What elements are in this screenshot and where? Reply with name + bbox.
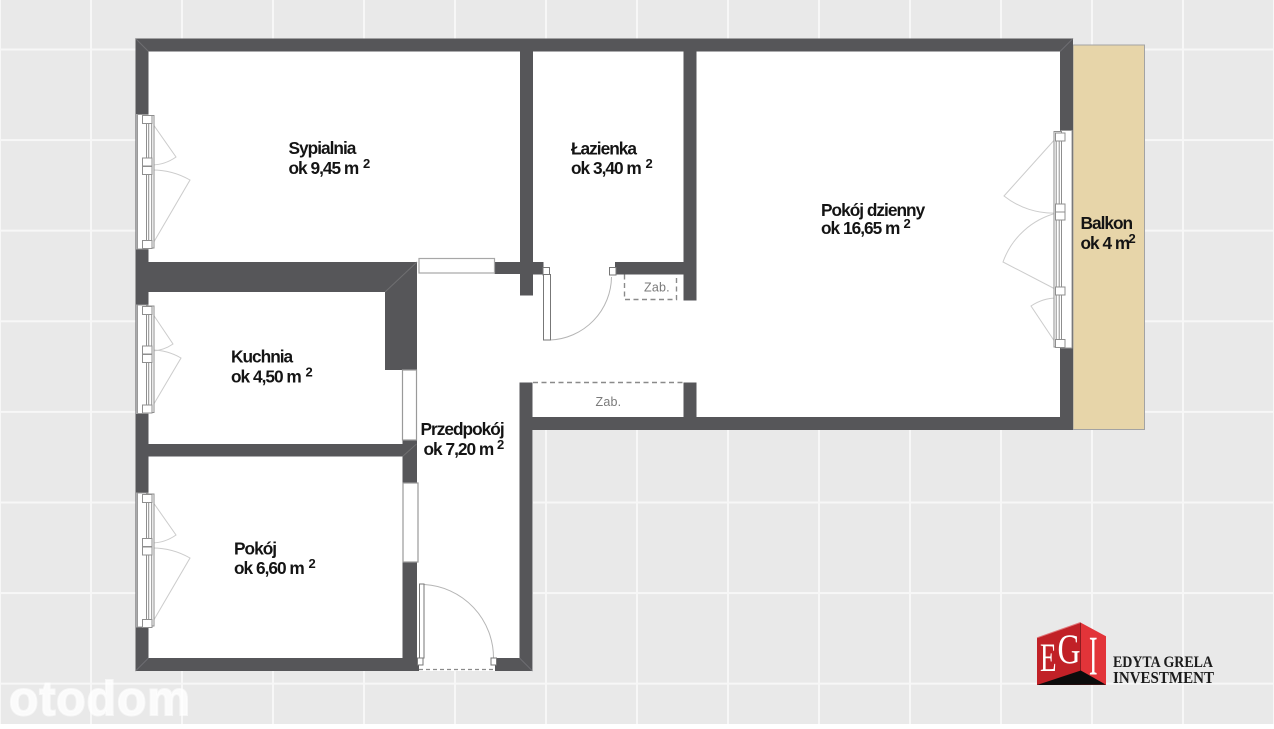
svg-text:ok 16,65 m: ok 16,65 m	[821, 218, 900, 238]
svg-text:Przedpokój: Przedpokój	[421, 419, 504, 439]
svg-text:ok 4 m: ok 4 m	[1081, 233, 1130, 253]
svg-text:Kuchnia: Kuchnia	[231, 347, 294, 367]
svg-text:ok 6,60 m: ok 6,60 m	[234, 558, 304, 578]
svg-text:2: 2	[646, 156, 653, 171]
svg-text:ok 9,45 m: ok 9,45 m	[289, 158, 359, 178]
svg-text:Łazienka: Łazienka	[571, 139, 637, 159]
svg-text:2: 2	[363, 156, 370, 171]
svg-text:Zab.: Zab.	[596, 395, 622, 409]
svg-text:I: I	[1089, 626, 1098, 688]
svg-text:2: 2	[497, 437, 504, 452]
svg-text:INVESTMENT: INVESTMENT	[1113, 668, 1214, 687]
svg-text:Pokój: Pokój	[234, 539, 276, 559]
svg-text:Sypialnia: Sypialnia	[289, 138, 357, 158]
svg-text:2: 2	[306, 365, 313, 380]
svg-text:2: 2	[1129, 231, 1136, 246]
svg-text:ok 7,20 m: ok 7,20 m	[424, 439, 494, 459]
svg-text:Balkon: Balkon	[1081, 213, 1133, 233]
svg-text:E: E	[1040, 635, 1057, 680]
svg-text:Zab.: Zab.	[644, 281, 670, 295]
svg-text:ok 4,50 m: ok 4,50 m	[231, 367, 301, 387]
svg-text:2: 2	[309, 556, 316, 571]
svg-text:2: 2	[904, 216, 911, 231]
svg-text:G: G	[1058, 628, 1081, 674]
svg-text:ok 3,40 m: ok 3,40 m	[571, 158, 641, 178]
